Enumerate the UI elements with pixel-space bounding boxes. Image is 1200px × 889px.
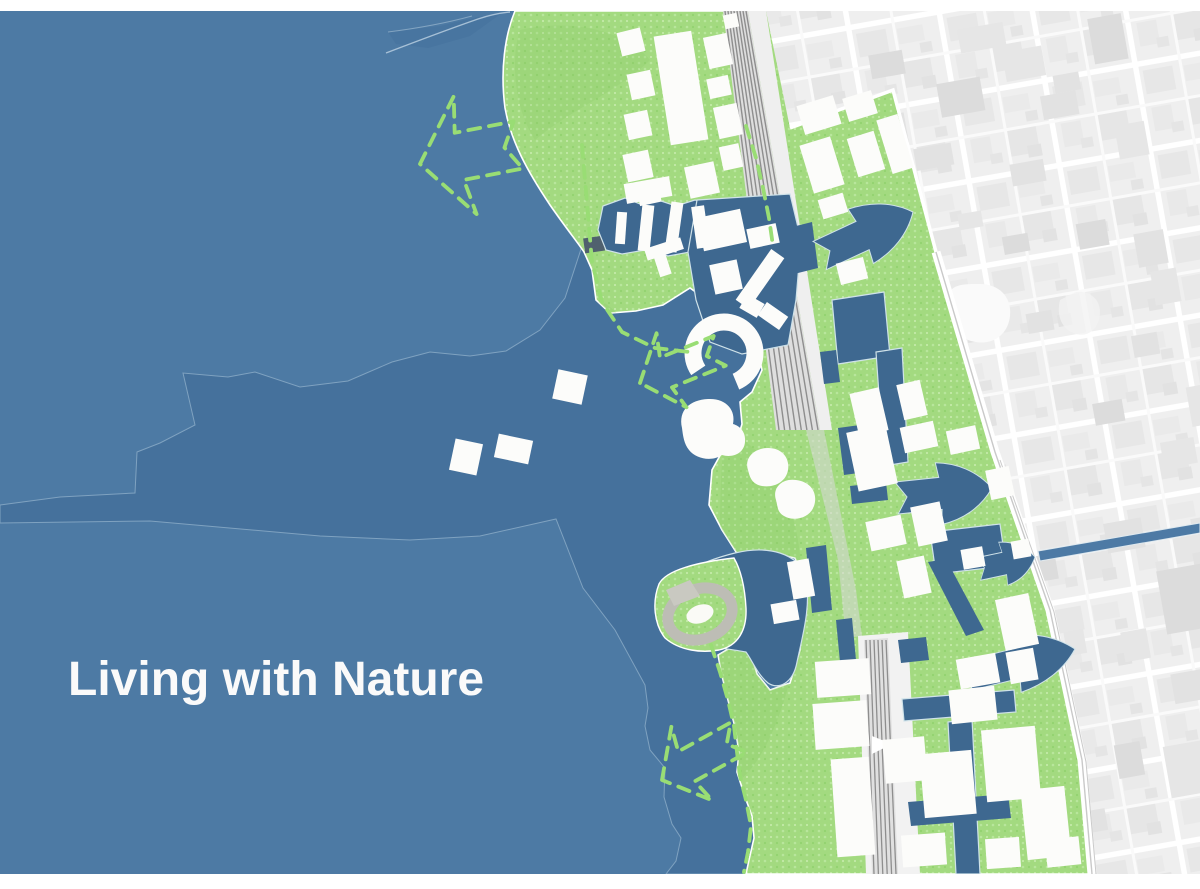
svg-text:Living with Nature: Living with Nature (68, 653, 484, 706)
